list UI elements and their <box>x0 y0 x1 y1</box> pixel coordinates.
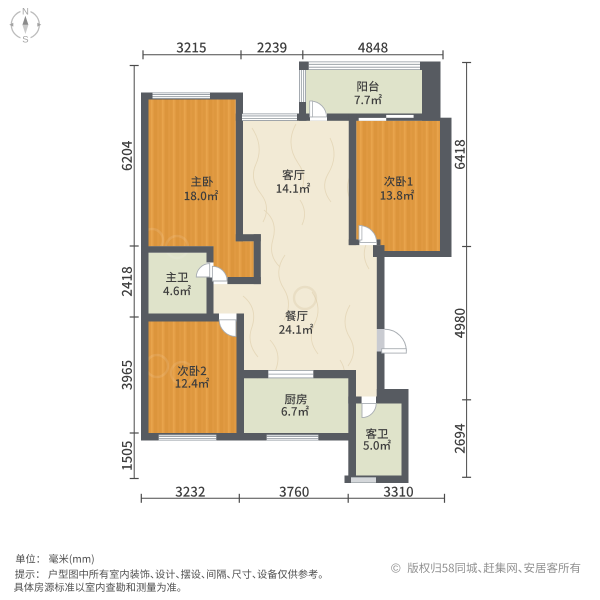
svg-text:N: N <box>22 7 29 18</box>
svg-text:S: S <box>22 34 28 45</box>
svg-text:©: © <box>391 560 401 575</box>
